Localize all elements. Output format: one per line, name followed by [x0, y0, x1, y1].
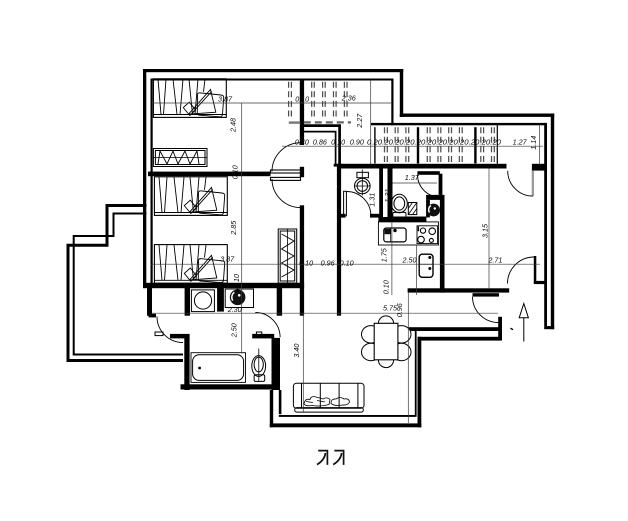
svg-text:1.75: 1.75: [379, 247, 388, 262]
svg-text:1.37: 1.37: [405, 173, 420, 182]
svg-text:0.20.20.20.20.20.20.20.20.20.2: 0.20.20.20.20.20.20.20.20.20.20.20.20: [367, 138, 501, 147]
svg-text:0.10: 0.10: [381, 280, 390, 294]
svg-text:0.10: 0.10: [295, 94, 309, 103]
svg-text:2.85: 2.85: [229, 220, 238, 236]
svg-text:3.87: 3.87: [218, 94, 233, 103]
svg-text:0.96: 0.96: [321, 258, 335, 267]
svg-text:1.31: 1.31: [383, 189, 392, 203]
svg-text:2.71: 2.71: [487, 255, 502, 264]
svg-text:2.50: 2.50: [230, 323, 239, 338]
svg-text:0.96: 0.96: [395, 303, 404, 317]
svg-text:0.86: 0.86: [313, 138, 327, 147]
svg-text:1.27: 1.27: [513, 137, 528, 146]
svg-text:0.10: 0.10: [299, 258, 313, 267]
svg-text:0.40: 0.40: [295, 138, 309, 147]
svg-text:1.14: 1.14: [529, 136, 538, 150]
svg-text:3.40: 3.40: [292, 344, 301, 358]
svg-text:2.27: 2.27: [355, 113, 364, 129]
svg-text:1.31: 1.31: [367, 193, 376, 207]
svg-text:3.87: 3.87: [220, 255, 235, 264]
svg-text:2.50: 2.50: [402, 255, 417, 264]
svg-text:0.10: 0.10: [230, 165, 239, 179]
svg-text:2.48: 2.48: [228, 118, 237, 133]
svg-text:0.90: 0.90: [350, 138, 364, 147]
svg-text:3.15: 3.15: [481, 223, 490, 238]
svg-text:0.10: 0.10: [340, 258, 354, 267]
svg-text:2.30: 2.30: [227, 305, 242, 314]
svg-text:2.36: 2.36: [341, 93, 356, 102]
svg-text:0.10: 0.10: [331, 138, 345, 147]
svg-text:0.10: 0.10: [232, 274, 241, 288]
